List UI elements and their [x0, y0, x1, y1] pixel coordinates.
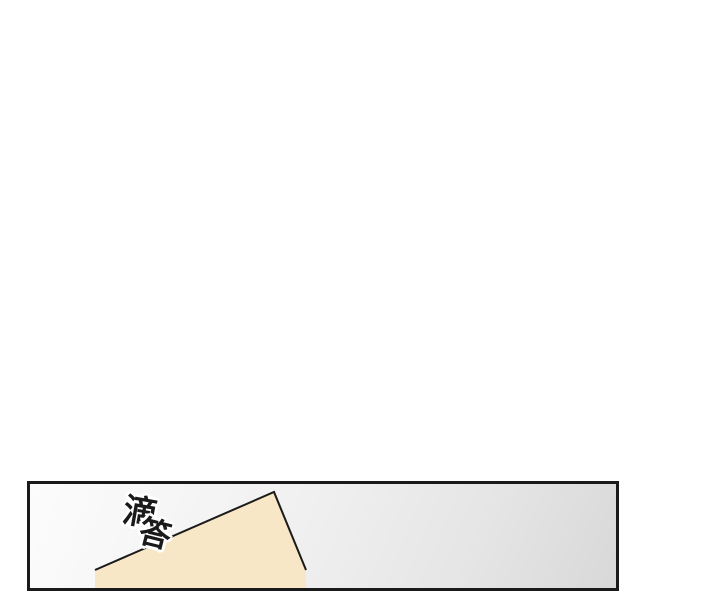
comic-panel: [27, 481, 619, 591]
reader-whitespace: [0, 0, 720, 481]
panel-artwork: [30, 484, 616, 588]
